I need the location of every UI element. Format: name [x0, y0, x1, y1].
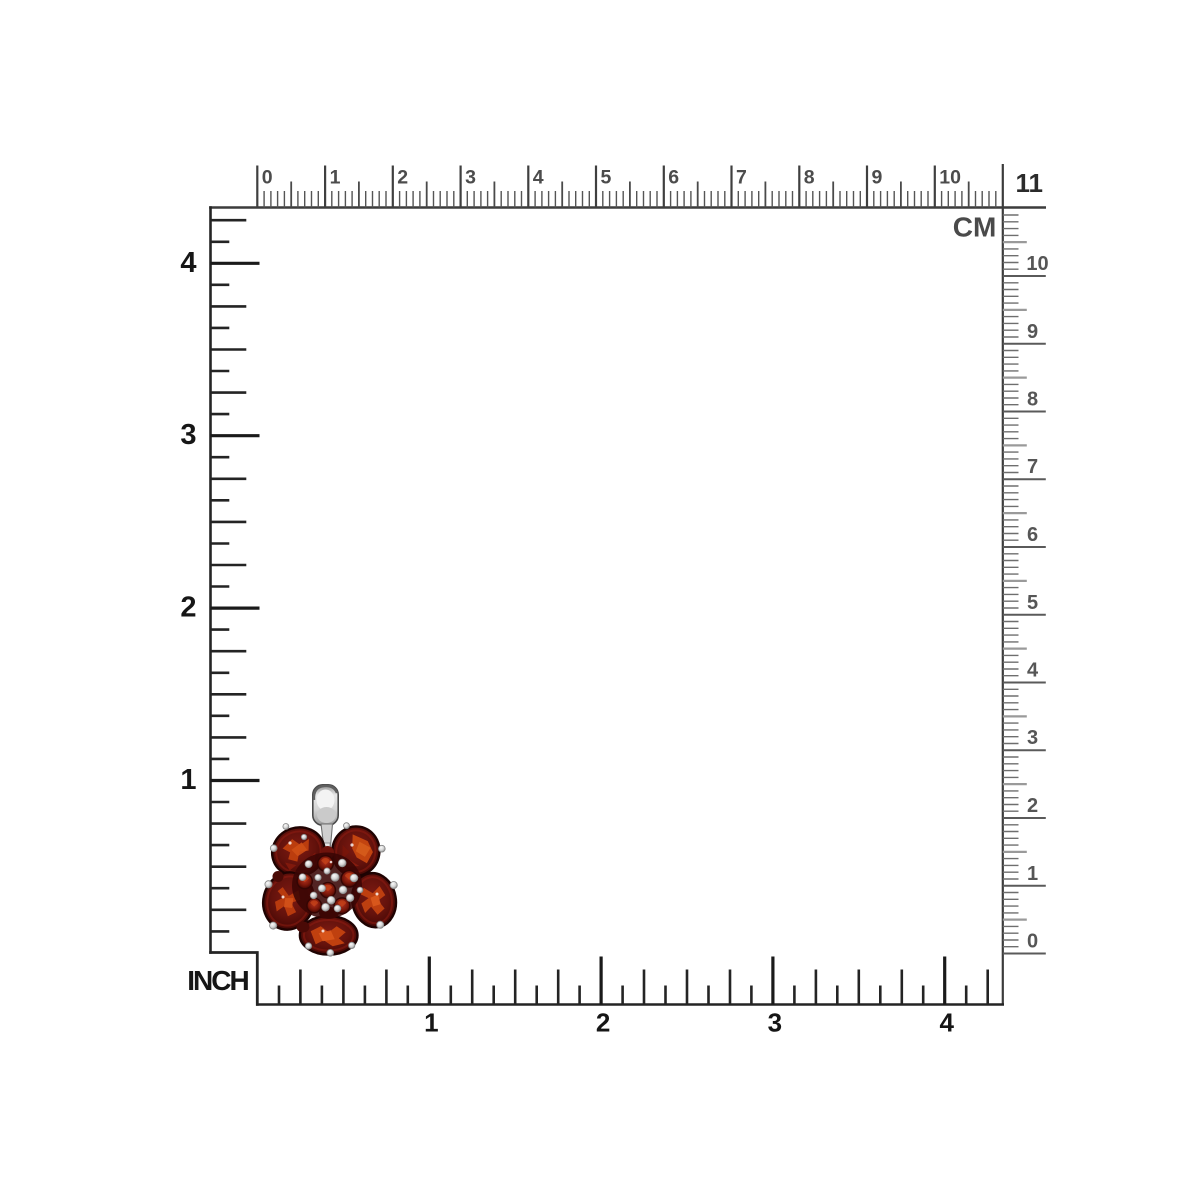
svg-text:3: 3 — [180, 419, 196, 451]
svg-text:4: 4 — [1027, 660, 1039, 682]
svg-text:6: 6 — [1027, 524, 1038, 546]
svg-text:4: 4 — [533, 167, 544, 189]
svg-text:2: 2 — [596, 1008, 610, 1038]
svg-text:4: 4 — [180, 247, 196, 279]
svg-text:1: 1 — [330, 167, 341, 189]
svg-text:10: 10 — [939, 167, 961, 189]
svg-text:0: 0 — [262, 167, 273, 189]
svg-text:4: 4 — [939, 1008, 954, 1038]
svg-text:5: 5 — [1027, 592, 1038, 614]
svg-text:0: 0 — [1027, 931, 1038, 953]
svg-text:7: 7 — [1027, 456, 1038, 478]
svg-text:10: 10 — [1026, 253, 1048, 275]
svg-text:5: 5 — [601, 167, 612, 189]
svg-text:11: 11 — [1016, 168, 1044, 198]
svg-text:1: 1 — [424, 1008, 438, 1038]
svg-text:3: 3 — [768, 1008, 782, 1038]
svg-text:9: 9 — [872, 167, 883, 189]
svg-text:8: 8 — [804, 167, 815, 189]
svg-text:1: 1 — [180, 764, 196, 796]
svg-text:2: 2 — [180, 592, 196, 624]
svg-text:2: 2 — [397, 167, 408, 189]
svg-text:CM: CM — [953, 212, 997, 243]
svg-text:3: 3 — [1027, 727, 1038, 749]
svg-text:6: 6 — [668, 167, 679, 189]
svg-text:8: 8 — [1027, 389, 1038, 411]
svg-text:2: 2 — [1027, 795, 1038, 817]
svg-text:1: 1 — [1027, 863, 1038, 885]
svg-text:9: 9 — [1027, 321, 1038, 343]
svg-text:INCH: INCH — [187, 965, 248, 996]
svg-text:7: 7 — [736, 167, 747, 189]
svg-text:3: 3 — [465, 167, 476, 189]
